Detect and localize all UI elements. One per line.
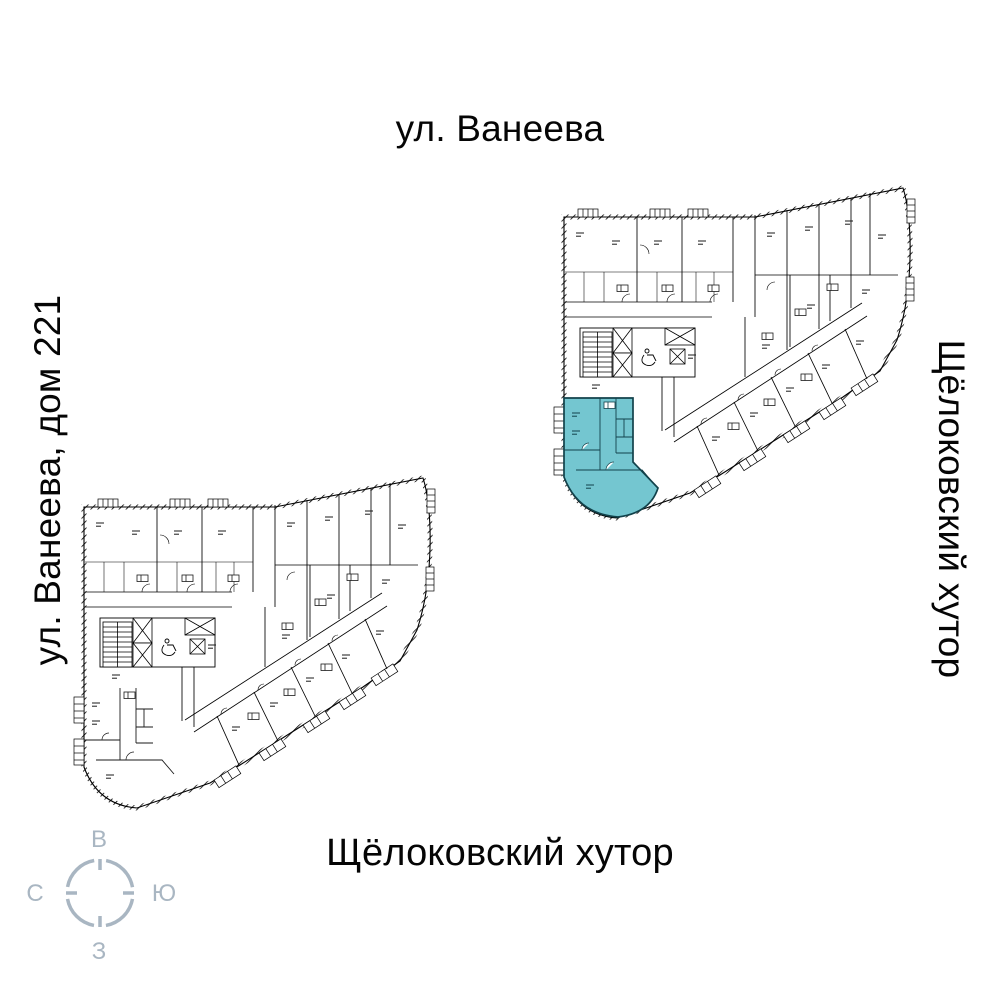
- compass-north-label: С: [26, 880, 43, 907]
- compass-east-label: В: [91, 826, 107, 853]
- compass-rose: В Ю З С: [20, 818, 180, 978]
- compass-circle: [66, 859, 134, 927]
- compass-west-label: З: [92, 938, 107, 965]
- compass-letters: В Ю З С: [26, 826, 176, 965]
- building-lower: [74, 478, 435, 808]
- compass-south-label: Ю: [152, 880, 176, 907]
- site-plan-page: ул. Ванеева ул. Ванеева, дом 221 Щёлоков…: [0, 0, 1000, 1000]
